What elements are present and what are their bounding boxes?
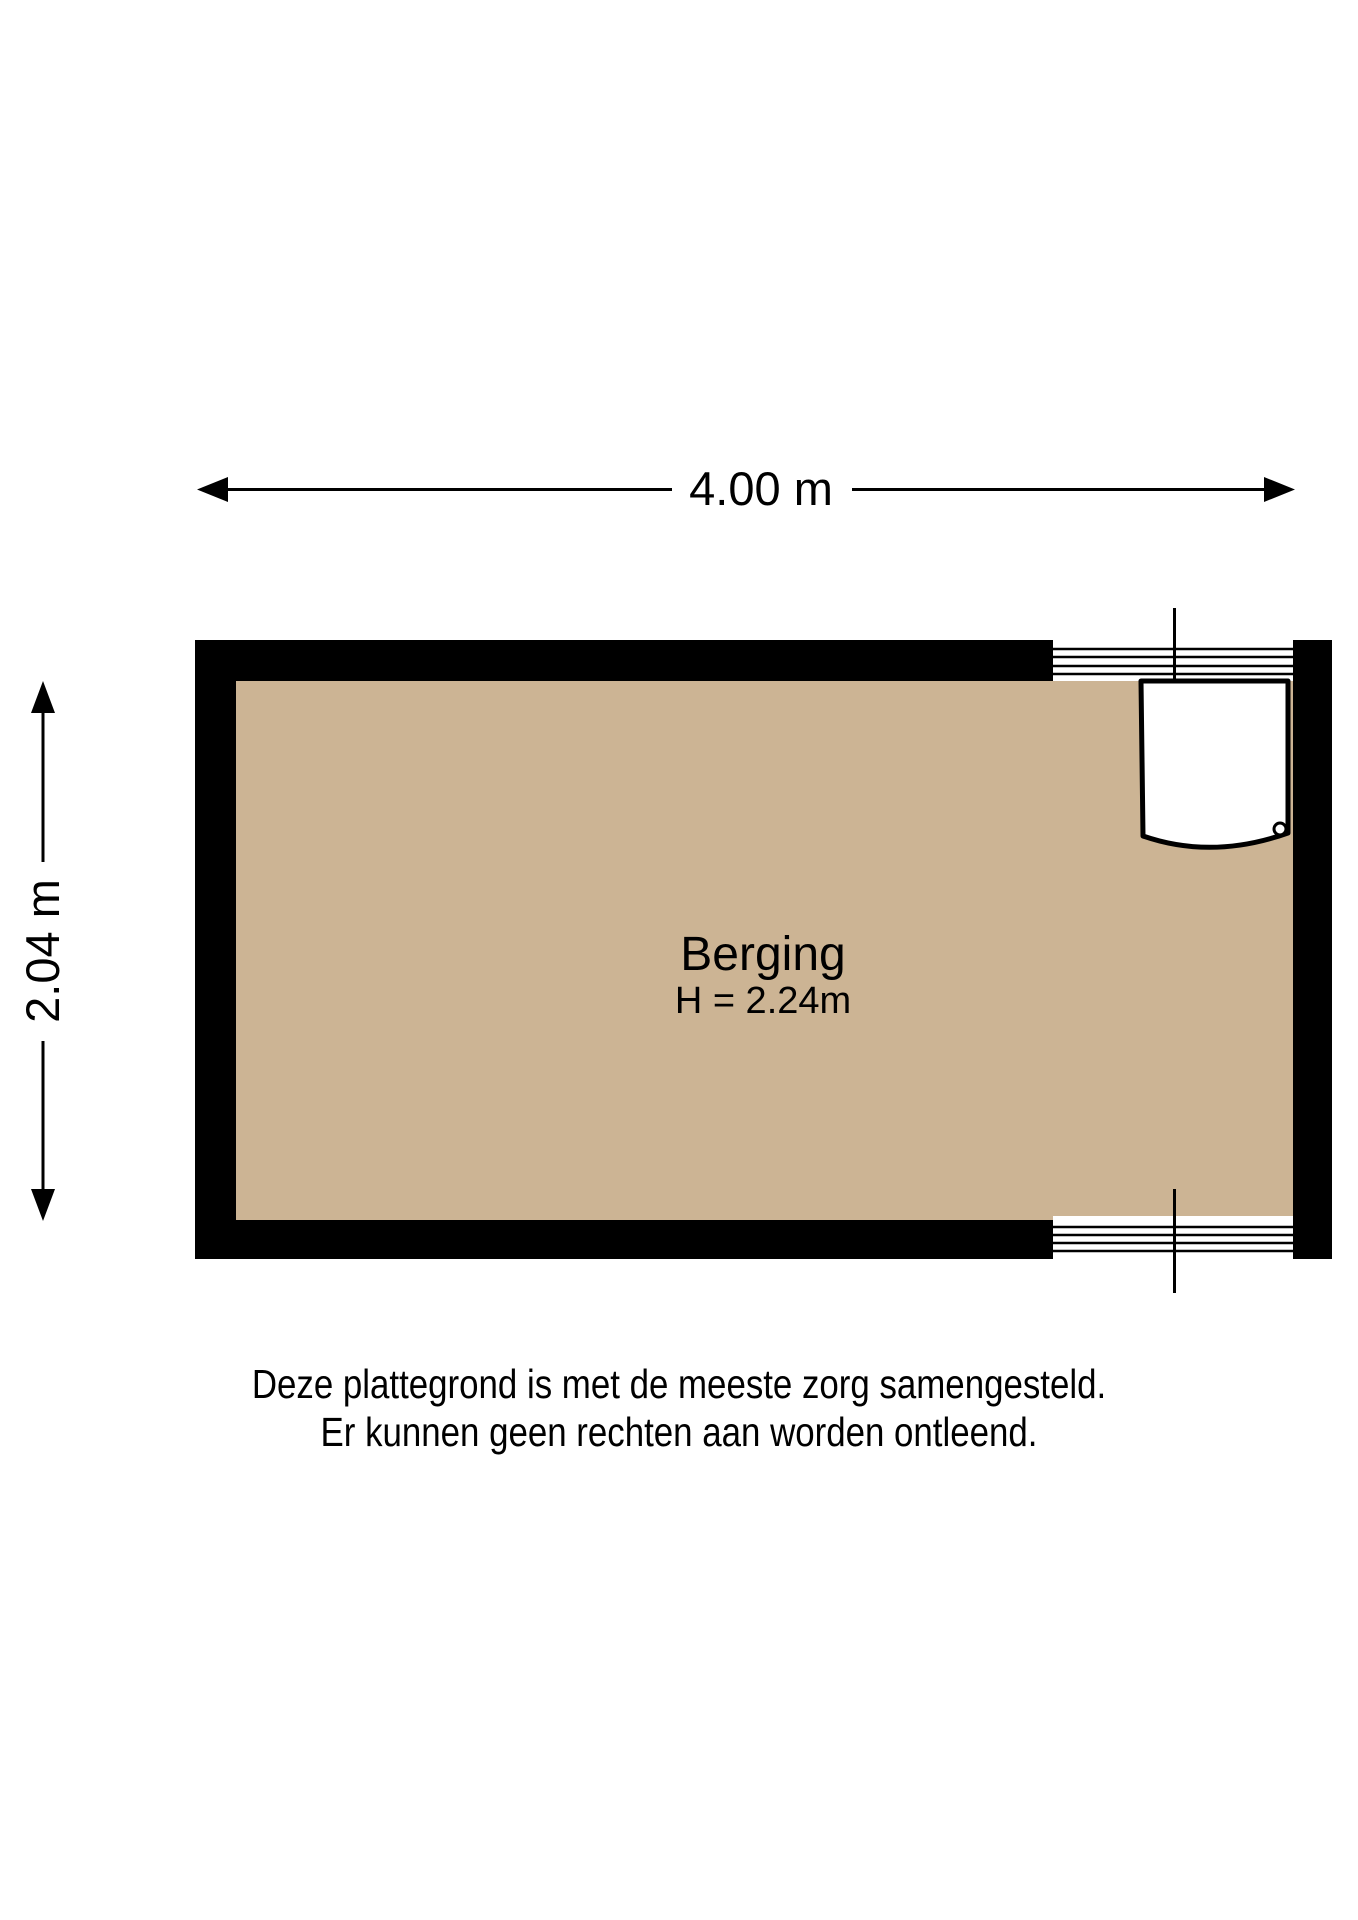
fixture-outline bbox=[1141, 681, 1288, 847]
disclaimer-line-1: Deze plattegrond is met de meeste zorg s… bbox=[102, 1360, 1256, 1408]
width-dimension-label: 4.00 m bbox=[689, 462, 833, 515]
disclaimer: Deze plattegrond is met de meeste zorg s… bbox=[102, 1360, 1256, 1456]
room-berging: Berging H = 2.24m bbox=[195, 608, 1332, 1293]
fixture bbox=[1141, 681, 1288, 847]
arrow-right-icon bbox=[1264, 477, 1295, 502]
height-dimension-label: 2.04 m bbox=[16, 879, 69, 1023]
width-dimension: 4.00 m bbox=[197, 462, 1295, 515]
room-label: Berging H = 2.24m bbox=[675, 928, 851, 1022]
room-height-label: H = 2.24m bbox=[675, 980, 851, 1022]
height-dimension: 2.04 m bbox=[16, 681, 69, 1221]
fixture-drain-circle bbox=[1274, 823, 1286, 835]
disclaimer-line-2: Er kunnen geen rechten aan worden ontlee… bbox=[102, 1408, 1256, 1456]
arrow-left-icon bbox=[197, 477, 228, 502]
floorplan-drawing: 4.00 m 2.04 m bbox=[0, 0, 1358, 1920]
arrow-down-icon bbox=[31, 1189, 55, 1221]
arrow-up-icon bbox=[31, 681, 55, 713]
floorplan-page: 4.00 m 2.04 m bbox=[0, 0, 1358, 1920]
room-name: Berging bbox=[680, 928, 845, 981]
